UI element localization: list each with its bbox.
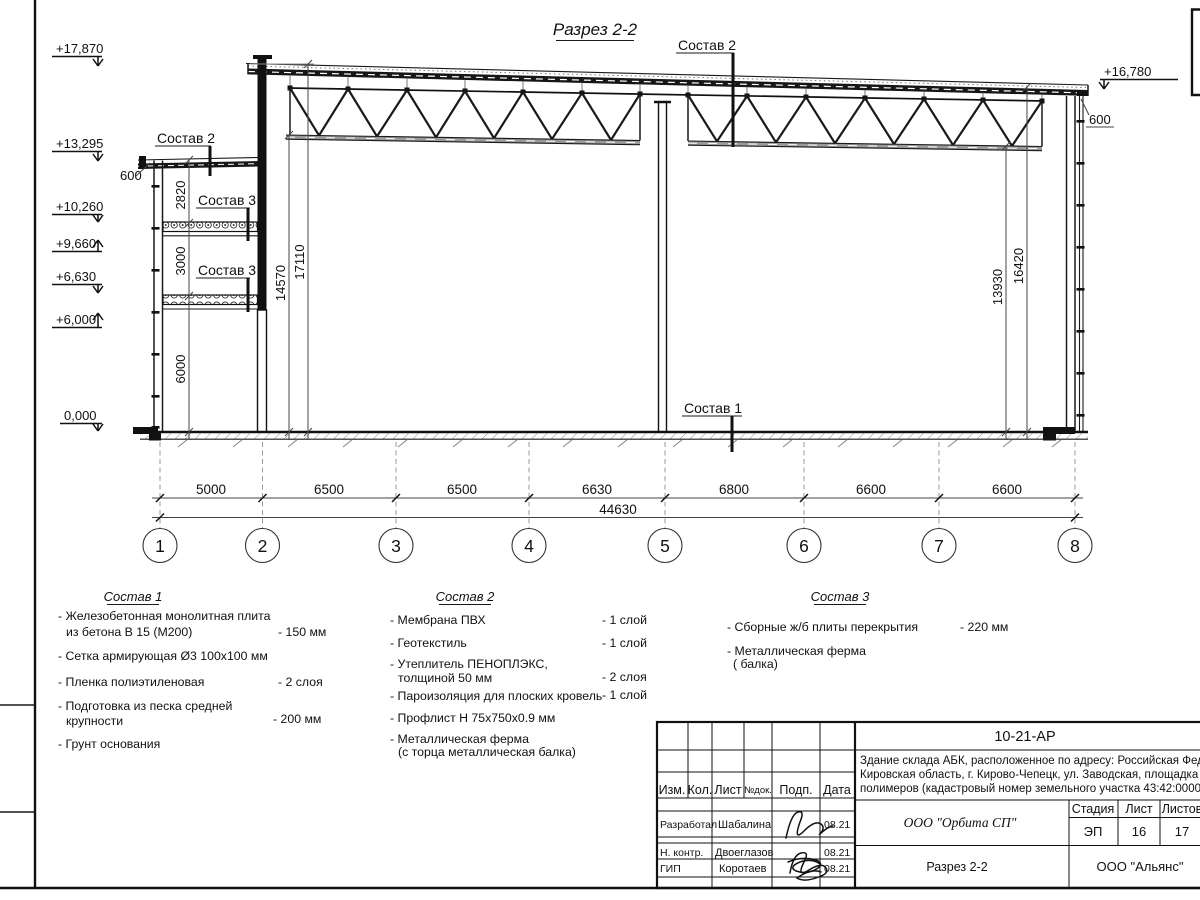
axis-number: 5: [660, 536, 670, 556]
legend-item: - Подготовка из песка средней: [58, 699, 232, 713]
signature-2: [790, 853, 827, 880]
callout-floor-label: Состав 1: [684, 400, 742, 416]
annex-dim-2820: 2820: [173, 181, 188, 210]
truss-web-left: [290, 88, 640, 140]
elevation-arrow-down: [52, 152, 103, 162]
legend-heading: Состав 1: [104, 589, 163, 604]
annex-slab-upper: [163, 222, 258, 232]
callout-roof-annex-label: Состав 2: [157, 130, 215, 146]
legend-value: - 1 слой: [602, 613, 647, 627]
axis-number: 1: [155, 536, 165, 556]
annex-left-wall: [154, 161, 163, 433]
legend-value: - 220 мм: [960, 620, 1008, 634]
row-date: 08.21: [824, 819, 850, 831]
row-name: Коротаев: [719, 863, 767, 875]
legend-value: - 2 слоя: [602, 670, 647, 684]
section-drawing-sheet: Разрез 2-2: [0, 0, 1200, 900]
axis-number: 8: [1070, 536, 1080, 556]
sheet-value: 16: [1132, 824, 1146, 839]
legend-value: - 2 слоя: [278, 675, 323, 689]
legend-value: - 1 слой: [602, 636, 647, 650]
row-role: Н. контр.: [660, 847, 703, 859]
col-header-kol: Кол.: [688, 783, 713, 797]
contractor-company: ООО "Альянс": [1097, 859, 1184, 874]
elevation-label-right: +16,780: [1104, 64, 1151, 79]
legend-item: - Сборные ж/б плиты перекрытия: [727, 620, 918, 634]
legend-item: - Профлист Н 75х750х0.9 мм: [390, 711, 555, 725]
title-block: Изм. Кол. Лист №док. Подп. Дата Разработ…: [657, 722, 1200, 888]
row-name: Шабалина: [718, 819, 772, 831]
span-dim: 6600: [992, 482, 1022, 497]
legend-value: - 150 мм: [278, 625, 326, 639]
axis-number: 7: [934, 536, 944, 556]
legend-item: ( балка): [733, 657, 778, 671]
elevation-label: +6,630: [56, 269, 96, 284]
object-line2: Кировская область, г. Кирово-Чепецк, ул.…: [860, 769, 1200, 781]
elevation-label: 0,000: [64, 408, 97, 423]
section-name: Разрез 2-2: [926, 860, 987, 874]
wall-axis8-cladding: [1080, 96, 1084, 432]
legend-item: - Сетка армирующая Ø3 100х100 мм: [58, 649, 268, 663]
main-roof: [246, 64, 1088, 97]
sheets-value: 17: [1175, 824, 1189, 839]
total-dim: 44630: [599, 502, 637, 517]
legend-item: - Пароизоляция для плоских кровель: [390, 689, 602, 703]
span-dim: 6630: [582, 482, 612, 497]
floor-slab-band: [140, 434, 1088, 440]
hall-dim-13930: 13930: [990, 269, 1005, 305]
object-line1: Здание склада АБК, расположенное по адре…: [860, 755, 1200, 767]
column-axis2-wall: [258, 56, 267, 310]
row-role: ГИП: [660, 863, 681, 875]
annex-roof-top-line: [138, 158, 258, 161]
legend-item: толщиной 50 мм: [398, 671, 492, 685]
roof-right-flashing: [1077, 90, 1088, 96]
row-date: 08.21: [824, 847, 850, 859]
legend-item: - Пленка полиэтиленовая: [58, 675, 204, 689]
vertical-dimensions: 2820 3000 6000 14570 17110 13930 16420: [173, 60, 1031, 440]
hall-dim-14570: 14570: [273, 265, 288, 301]
ground-floor: [133, 427, 1088, 447]
elevation-label: +10,260: [56, 199, 103, 214]
callout-slab-upper-label: Состав 3: [198, 192, 256, 208]
axis-number: 6: [799, 536, 809, 556]
elevation-arrow-down: [52, 215, 103, 223]
parapet-dim-right-label: 600: [1089, 112, 1111, 127]
ground-hatch-ticks: [178, 440, 1061, 447]
drawing-title: Разрез 2-2: [553, 20, 638, 39]
col-header-data: Дата: [823, 783, 851, 797]
row-role: Разработал: [660, 819, 717, 831]
elevation-arrow-down: [60, 424, 103, 432]
legend-item: из бетона В 15 (М200): [66, 625, 192, 639]
frame-corner-box: [1192, 10, 1200, 96]
object-line3: полимеров (кадастровый номер земельного …: [860, 783, 1200, 795]
stage-label: Стадия: [1072, 802, 1115, 816]
elevation-arrow-down: [52, 57, 103, 67]
row-name: Двоеглазов: [715, 847, 774, 859]
span-dim: 6500: [447, 482, 477, 497]
axis-number: 3: [391, 536, 401, 556]
col-header-podp: Подп.: [779, 783, 812, 797]
legend-item: - Утеплитель ПЕНОПЛЭКС,: [390, 657, 548, 671]
designer-company: ООО "Орбита СП": [904, 815, 1017, 830]
span-dim: 5000: [196, 482, 226, 497]
annex-wall-panel-joints: [152, 185, 160, 429]
col-header-izm: Изм.: [659, 783, 686, 797]
hall-dim-17110: 17110: [292, 244, 307, 279]
horizontal-dimensions: 5000 6500 6500 6630 6800 6600 6600 44630: [152, 442, 1083, 528]
col-header-ndok: №док.: [744, 785, 772, 796]
legend-item: крупности: [66, 714, 123, 728]
legend-item: - Грунт основания: [58, 737, 160, 751]
elevation-label: +13,295: [56, 136, 103, 151]
span-dim: 6500: [314, 482, 344, 497]
legend-heading: Состав 3: [811, 589, 870, 604]
legend-item: - Металлическая ферма: [727, 644, 866, 658]
callout-roof-main-label: Состав 2: [678, 37, 736, 53]
annex-dim-6000: 6000: [173, 355, 188, 384]
legend-sostav2: Состав 2 - Мембрана ПВХ - 1 слой - Геоте…: [390, 589, 647, 759]
sheet-label: Лист: [1125, 802, 1152, 816]
parapet-dim-left-label: 600: [120, 168, 142, 183]
elevation-label: +17,870: [56, 41, 103, 56]
frame-margin-ticks: [0, 705, 35, 812]
col-header-list: Лист: [714, 783, 741, 797]
column-axis2-lower: [258, 310, 267, 432]
doc-code: 10-21-АР: [994, 729, 1055, 745]
columns: [253, 55, 1085, 432]
span-dim: 6800: [719, 482, 749, 497]
row-date: 08.21: [824, 863, 850, 875]
legend-item: (с торца металлическая балка): [398, 745, 576, 759]
legend-value: - 200 мм: [273, 712, 321, 726]
span-dim: 6600: [856, 482, 886, 497]
legend-item: - Металлическая ферма: [390, 732, 529, 746]
elevation-label: +9,660: [56, 236, 96, 251]
hall-dim-16420: 16420: [1011, 248, 1026, 284]
legend-item: - Мембрана ПВХ: [390, 613, 486, 627]
elevation-arrow-right: [1099, 80, 1178, 90]
callout-slab-lower-label: Состав 3: [198, 262, 256, 278]
truss-web-right: [688, 95, 1042, 146]
column-axis2-cap: [253, 55, 272, 59]
legend-sostav1: Состав 1 - Железобетонная монолитная пли…: [58, 589, 326, 751]
elevation-label: +6,000: [56, 312, 96, 327]
legend-item: - Геотекстиль: [390, 636, 467, 650]
annex-slab-lower: [163, 295, 258, 305]
column-axis8: [1067, 96, 1076, 432]
annex-dim-3000: 3000: [173, 247, 188, 276]
elevation-arrow-down: [52, 285, 103, 294]
stage-value: ЭП: [1084, 824, 1103, 839]
legend-value: - 1 слой: [602, 688, 647, 702]
column-axis5: [659, 102, 667, 432]
legend-sostav3: Состав 3 - Сборные ж/б плиты перекрытия …: [727, 589, 1008, 671]
legend-item: - Железобетонная монолитная плита: [58, 609, 271, 623]
callouts: Состав 2 Состав 2 Состав 3 Состав 3 Сост…: [155, 37, 742, 452]
legend-heading: Состав 2: [436, 589, 495, 604]
grid-axes: 1 2 3 4 5 6 7 8: [143, 529, 1092, 563]
sheets-label: Листов: [1162, 802, 1200, 816]
axis-number: 4: [524, 536, 534, 556]
axis-number: 2: [258, 536, 268, 556]
